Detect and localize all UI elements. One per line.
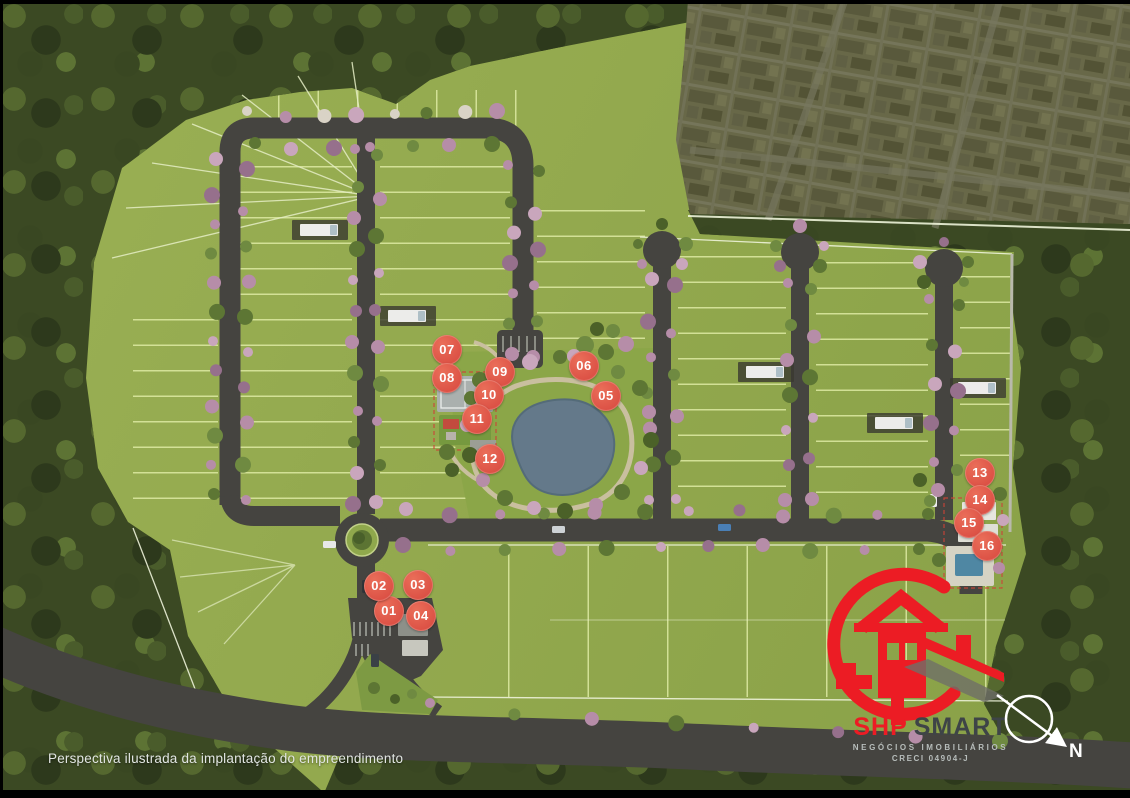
plan-marker-08: 08	[432, 363, 462, 393]
letterbox-left	[0, 0, 3, 798]
letterbox-top	[0, 0, 1130, 4]
plan-marker-13: 13	[965, 458, 995, 488]
plan-caption: Perspectiva ilustrada da implantação do …	[48, 751, 403, 766]
plan-marker-12: 12	[475, 444, 505, 474]
plan-marker-03: 03	[403, 570, 433, 600]
letterbox-bottom	[0, 790, 1130, 798]
plan-marker-06: 06	[569, 351, 599, 381]
plan-marker-16: 16	[972, 531, 1002, 561]
plan-markers: 01020304050607080910111213141516	[0, 0, 1130, 798]
plan-marker-11: 11	[462, 404, 492, 434]
plan-marker-07: 07	[432, 335, 462, 365]
plan-marker-05: 05	[591, 381, 621, 411]
masterplan-illustration: SHPSMART NEGÓCIOS IMOBILIÁRIOS CRECI 049…	[0, 0, 1130, 798]
plan-marker-02: 02	[364, 571, 394, 601]
plan-marker-04: 04	[406, 601, 436, 631]
